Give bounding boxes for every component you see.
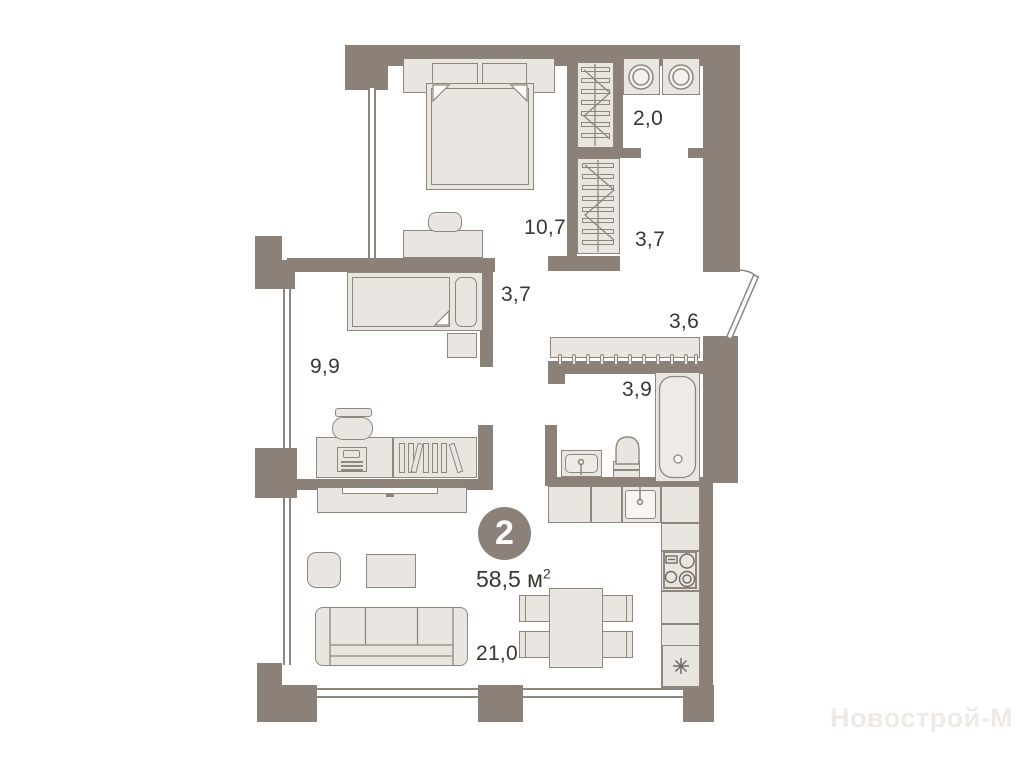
area-unit: м <box>527 566 543 592</box>
room-label-bedroom-master: 10,7 <box>524 216 566 240</box>
desk-shelf-divider <box>392 437 394 478</box>
counter-divider <box>590 486 592 523</box>
hanger-bar <box>582 218 614 223</box>
counter-divider <box>621 486 623 523</box>
bathroom-sink-basin <box>565 454 598 473</box>
room-label-wardrobe: 3,7 <box>635 228 665 252</box>
fridge <box>662 645 700 687</box>
wall-left-pier-b <box>282 260 295 289</box>
dining-table <box>549 588 603 668</box>
room-label-living-kitchen: 21,0 <box>476 642 518 666</box>
book <box>441 443 447 473</box>
window-bedroom1-left <box>368 88 376 258</box>
hanger-bar <box>582 174 614 179</box>
room-label-hallway: 3,6 <box>669 310 699 334</box>
wall-bedroom1-bottom-right <box>548 256 620 271</box>
wall-corner-bottom-right <box>683 685 714 722</box>
kitchen-counter-top-run <box>548 486 700 523</box>
hanger-bar <box>581 100 610 105</box>
counter-divider <box>660 486 662 523</box>
stove <box>663 551 697 589</box>
wall-corner-bottom-left-a <box>257 663 282 722</box>
wall-bedroom1-bottom-left <box>287 258 495 272</box>
room-label-bedroom-second: 9,9 <box>310 355 340 379</box>
wall-laundry-divider-left <box>567 148 641 158</box>
double-bed-pillow-right <box>482 63 527 85</box>
coat-hook <box>614 354 618 365</box>
wall-left-pier-a <box>255 236 282 289</box>
double-bed-pillow-left <box>432 63 478 85</box>
wall-right-mid <box>703 336 738 483</box>
hanger-bar <box>581 133 610 138</box>
wall-bottom-mid-pier <box>478 685 523 722</box>
wall-bathroom-left <box>545 425 557 477</box>
coat-hook <box>656 354 660 365</box>
hanger-bar <box>582 163 614 168</box>
room-label-bathroom: 3,9 <box>622 378 652 402</box>
desk-chair-back <box>335 408 372 417</box>
window-bottom-left <box>317 688 478 698</box>
single-bed-pillow <box>455 277 477 327</box>
counter-divider <box>661 623 700 625</box>
hanger-bar <box>582 229 614 234</box>
wall-left-pier-mid <box>255 448 297 498</box>
computer-vent-line <box>341 465 363 467</box>
room-label-corridor: 3,7 <box>501 283 531 307</box>
bedroom1-desk <box>403 230 483 258</box>
computer-vent-line <box>341 469 363 471</box>
dining-chair-back <box>626 595 633 622</box>
coat-hook <box>670 354 674 365</box>
wall-closet-right <box>614 45 623 148</box>
single-bed-mattress <box>352 277 450 327</box>
coat-hook <box>684 354 688 365</box>
coat-hook <box>642 354 646 365</box>
dining-chair-back <box>626 631 633 658</box>
coat-hook <box>572 354 576 365</box>
counter-divider <box>661 590 700 592</box>
hanger-bar <box>581 67 610 72</box>
pouf <box>307 552 341 588</box>
window-left-lower <box>283 498 291 665</box>
sofa <box>315 607 468 666</box>
book <box>432 443 438 473</box>
nightstand <box>447 333 477 358</box>
coat-hook <box>600 354 604 365</box>
toilet-tank <box>613 461 640 470</box>
hanger-bar <box>582 207 614 212</box>
hanger-bar <box>582 185 614 190</box>
hanger-bar <box>581 122 610 127</box>
dining-chair-back <box>519 631 526 658</box>
washing-machine-right <box>662 58 700 95</box>
book <box>399 443 405 473</box>
wall-right-lower <box>700 483 713 700</box>
wall-bedroom2-right-lower <box>478 425 493 480</box>
desk-chair-seat <box>332 417 373 440</box>
hanger-bar <box>582 240 614 245</box>
tv <box>342 487 438 494</box>
tv-mount <box>386 494 394 497</box>
kitchen-sink <box>625 490 656 519</box>
hanger-bar <box>581 111 610 116</box>
total-area-label: 58,5 м2 <box>476 566 551 593</box>
dining-chair-back <box>519 595 526 622</box>
wall-bathroom-top-left-corner <box>548 374 565 384</box>
hanger-bar <box>581 89 610 94</box>
hanger-bar <box>581 78 610 83</box>
coffee-table <box>366 554 416 588</box>
coat-hook <box>694 354 698 365</box>
entrance-door <box>727 270 759 339</box>
toilet-bowl <box>616 437 639 464</box>
area-value: 58,5 <box>476 566 521 592</box>
computer-screen <box>343 450 360 458</box>
floor-plan: 10,7 2,0 3,7 3,7 3,6 9,9 3,9 21,0 2 58,5… <box>0 0 1024 768</box>
wall-corner-bottom-left-b <box>282 685 317 722</box>
wall-top-left-pier <box>345 45 388 90</box>
room-label-laundry: 2,0 <box>633 107 663 131</box>
book <box>423 443 429 473</box>
hanger-bar <box>582 196 614 201</box>
computer-vent-line <box>341 461 363 463</box>
coat-hook <box>558 354 562 365</box>
window-bottom-right <box>523 688 683 698</box>
area-sup: 2 <box>543 566 551 581</box>
double-bed-mattress-inner-line <box>431 88 529 185</box>
coat-hook <box>628 354 632 365</box>
rooms-count-badge: 2 <box>478 507 531 560</box>
bathtub <box>655 372 700 482</box>
wall-laundry-divider-right <box>688 148 703 158</box>
window-left-upper <box>283 289 291 448</box>
bedroom1-chair <box>428 212 462 232</box>
developer-watermark: Новострой-М <box>830 703 1013 734</box>
coat-hook <box>586 354 590 365</box>
wall-right-upper <box>703 45 740 272</box>
toilet-tank-lower <box>613 470 640 478</box>
washing-machine-left <box>623 58 660 95</box>
